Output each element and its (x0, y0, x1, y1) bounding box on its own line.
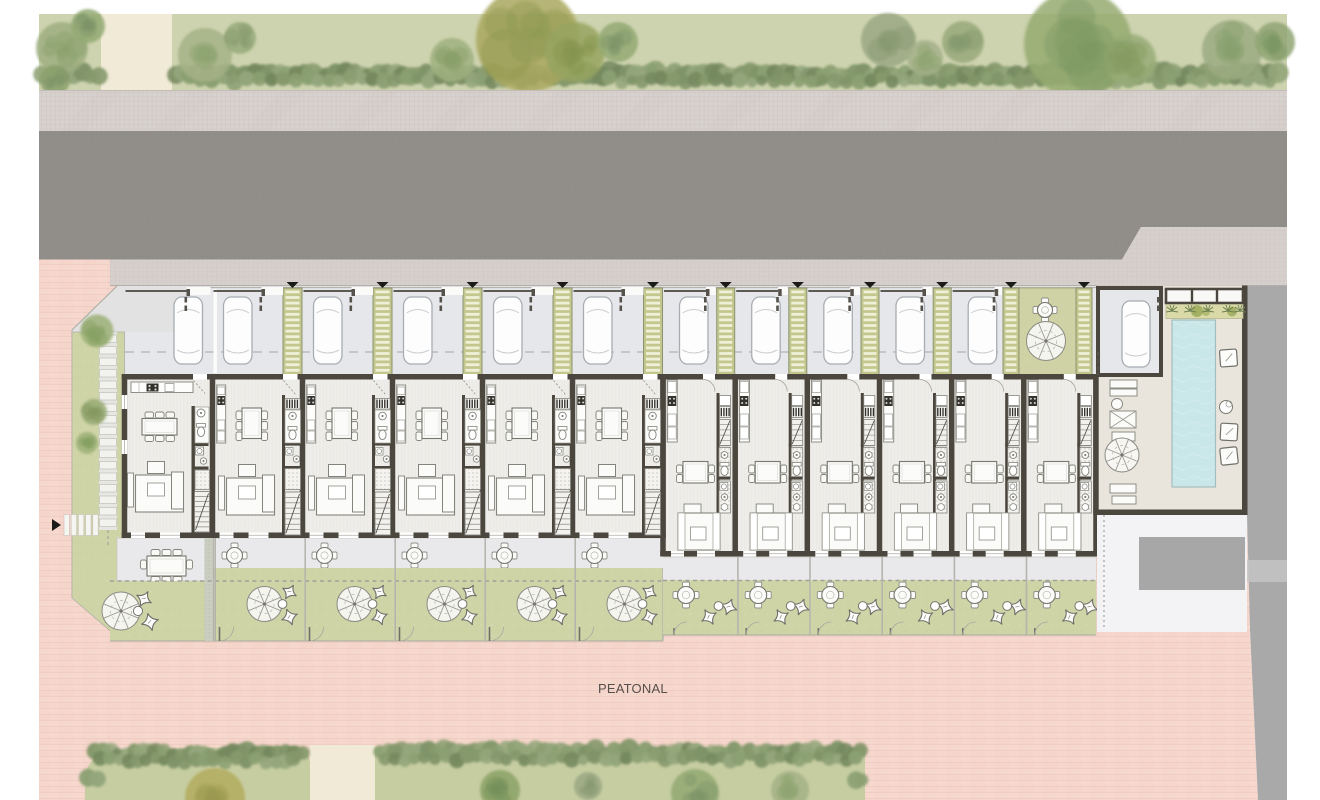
svg-text:PEATONAL: PEATONAL (598, 681, 668, 696)
